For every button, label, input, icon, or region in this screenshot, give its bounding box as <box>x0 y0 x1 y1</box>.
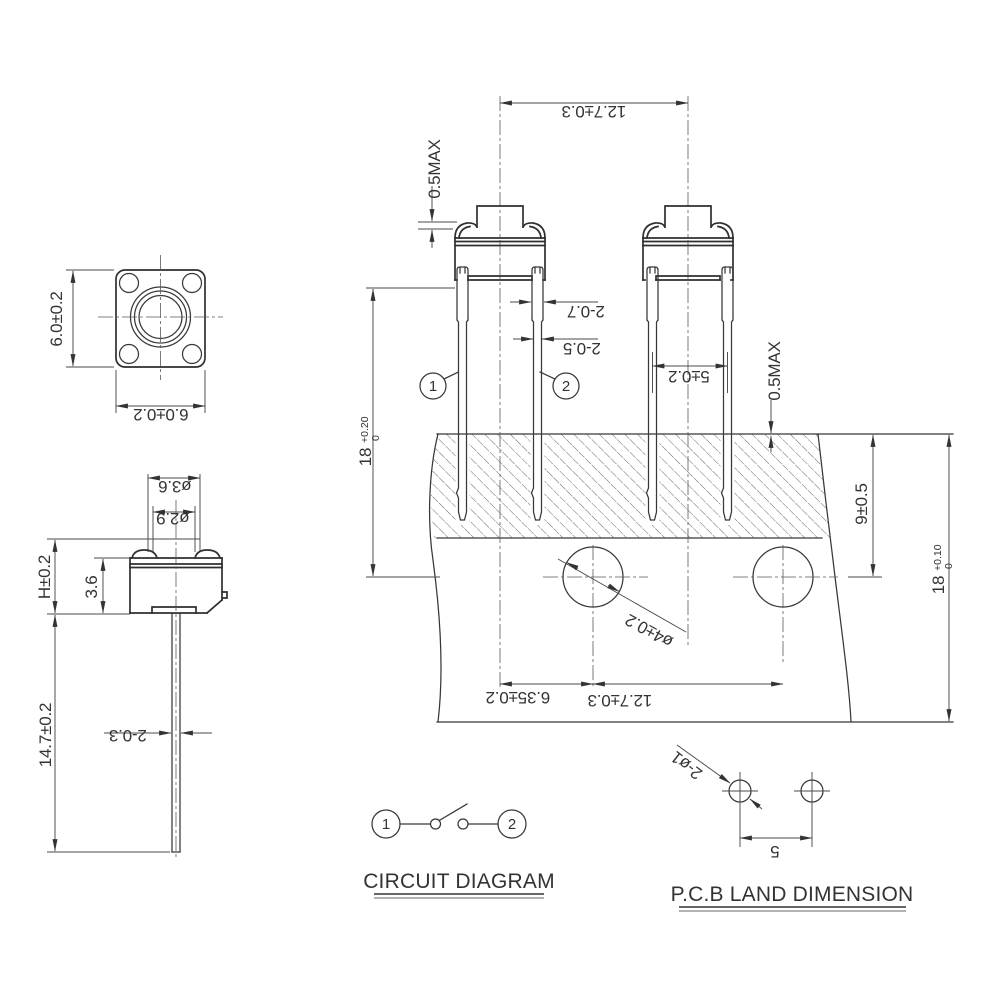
dim-hole-dia: ø4±0.2 <box>622 610 676 652</box>
dim-insert-depth: 18 +0.20 0 <box>356 416 382 466</box>
dim-top-view-width: 6.0±0.2 <box>133 405 188 424</box>
dim-pitch-top: 12.7±0.3 <box>562 102 626 121</box>
dim-land-pitch: 5 <box>770 842 779 861</box>
circuit-title-underline <box>374 894 544 898</box>
pin1-label: 1 <box>429 378 437 395</box>
circuit-symbol <box>372 804 526 838</box>
dim-panel-depth: 18 +0.10 0 <box>929 544 955 594</box>
dim-stem-outer: ø3.6 <box>158 477 191 496</box>
dim-button-protrusion: 0.5MAX <box>425 139 444 198</box>
pcb-land-title: P.C.B LAND DIMENSION <box>671 883 914 906</box>
pin-callouts <box>420 372 579 399</box>
circuit-diagram-title: CIRCUIT DIAGRAM <box>363 870 555 893</box>
dim-lead-width: 2-0.3 <box>109 726 147 745</box>
circuit-pin2-label: 2 <box>508 816 516 833</box>
side-body-outline <box>130 550 227 613</box>
dim-top-view-height: 6.0±0.2 <box>47 291 66 346</box>
dim-insert-depth-tol-lower: 0 <box>370 435 382 441</box>
dim-standoff: 0.5MAX <box>765 341 784 400</box>
circuit-pin1-label: 1 <box>382 816 390 833</box>
pcb-land-dimension: 2-ø1 5 P.C.B LAND DIMENSION <box>667 745 913 911</box>
dim-panel-depth-tol-lower: 0 <box>943 563 955 569</box>
dim-pitch-bottom: 12.7±0.3 <box>588 691 652 710</box>
top-view: 6.0±0.2 6.0±0.2 <box>47 255 223 424</box>
dim-stem-inner: ø2.9 <box>156 509 189 528</box>
dim-total-height: H±0.2 <box>35 555 54 599</box>
drawing-canvas: 6.0±0.2 6.0±0.2 <box>0 0 1000 1001</box>
dim-lead-narrow: 2-0.5 <box>563 339 601 358</box>
dim-hole-center: 9±0.5 <box>852 483 871 524</box>
pin2-label: 2 <box>562 378 570 395</box>
switch-1-front <box>455 96 545 690</box>
dim-land-hole-dia: 2-ø1 <box>667 747 706 783</box>
dim-offset: 6.35±0.2 <box>486 688 550 707</box>
side-view: ø3.6 ø2.9 H±0.2 3.6 14.7±0.2 2-0.3 <box>35 474 227 860</box>
land-pad-crosshairs <box>722 772 830 847</box>
circuit-diagram: 1 2 CIRCUIT DIAGRAM <box>363 804 555 898</box>
dim-insert-depth-base: 18 <box>356 448 375 467</box>
dim-body-height: 3.6 <box>82 575 101 598</box>
dim-lead-wide: 2-0.7 <box>567 302 605 321</box>
technical-drawing-page: 6.0±0.2 6.0±0.2 <box>0 0 1000 1001</box>
land-dim-lines <box>677 745 812 838</box>
top-view-dimension-lines <box>66 270 205 413</box>
dim-leg-span: 5±0.2 <box>668 367 709 386</box>
pcb-land-title-underline <box>679 907 906 911</box>
hole-centerlines <box>543 545 838 688</box>
pcb-section <box>430 434 953 722</box>
dim-panel-depth-base: 18 <box>929 576 948 595</box>
front-view-dimensions: 12.7±0.3 0.5MAX 2-0.7 2-0.5 5±0.2 1 2 18… <box>356 102 955 721</box>
dim-lead-length: 14.7±0.2 <box>36 703 55 767</box>
